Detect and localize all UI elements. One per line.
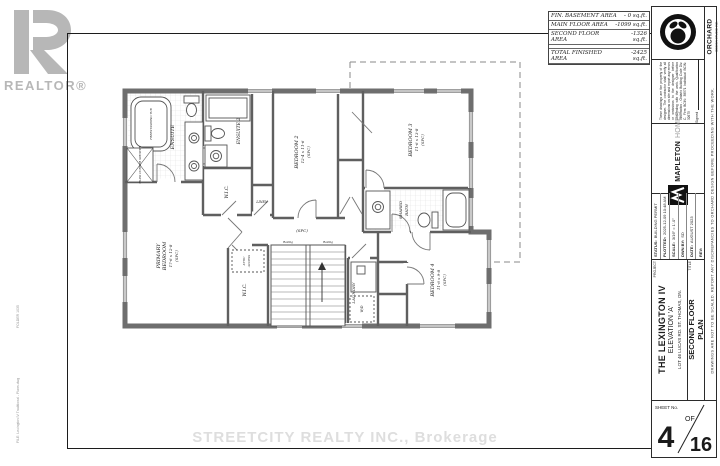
svg-text:(SPC): (SPC) — [306, 146, 311, 158]
railing-label: Railing — [282, 240, 293, 244]
tub-label: FREESTANDING TUB — [149, 108, 153, 140]
sheet-title-line1: SECOND FLOOR — [687, 299, 696, 359]
title-cell-label: TITLE — [688, 261, 692, 271]
table-row: MAIN FLOOR AREA -1099 sq.ft. — [549, 21, 649, 30]
laundry-label: LAUNDRY — [351, 282, 356, 305]
wd-label: W/D — [360, 305, 364, 312]
svg-text:17-6 x 12-8: 17-6 x 12-8 — [168, 244, 173, 267]
status-row: DATE:AUGUST 2023 — [687, 193, 696, 259]
svg-text:BATH: BATH — [404, 204, 409, 217]
svg-text:12-4 x 11-6: 12-4 x 11-6 — [300, 140, 305, 163]
status-row: STATUS:BUILDING PERMIT — [652, 193, 661, 259]
project-address: LOT 46 LUCAS RD. ST. THOMAS, ON. — [677, 290, 682, 369]
svg-text:(SPC): (SPC) — [174, 250, 179, 262]
wic-label: W.I.C. — [224, 185, 230, 199]
table-row-total: TOTAL FINISHED AREA -2425 sq.ft. — [549, 48, 649, 64]
status-table: STATUS:BUILDING PERMIT PLOTTED:2025-12-0… — [652, 193, 704, 259]
stairs — [271, 245, 345, 326]
orchard-brand: ORCHARD DESIGN STUDIO INC. — [705, 13, 718, 59]
sheet-number-cell: SHEET No. 4 OF 16 — [652, 401, 716, 457]
sheet-total: 16 — [690, 434, 712, 456]
brokerage-watermark: STREETCITY REALTY INC., Brokerage — [175, 429, 515, 446]
primary-wic-label: W.I.C. — [242, 283, 248, 297]
signature-line — [695, 59, 699, 110]
title-block: ORCHARD DESIGN STUDIO INC. These drawing… — [651, 6, 717, 458]
area-summary-table: FIN. BASEMENT AREA - 0 sq.ft. MAIN FLOOR… — [548, 11, 650, 65]
project-cell-label: PROJECT — [653, 261, 657, 277]
ensuite2-label: ENSUITE 2 — [236, 118, 242, 146]
svg-text:ACCESS: ACCESS — [247, 255, 251, 268]
table-row: FIN. BASEMENT AREA - 0 sq.ft. — [549, 12, 649, 21]
toilet-icon — [205, 126, 211, 141]
project-cell: PROJECT THE LEXINGTON IV ELEVATION 'A' L… — [652, 259, 687, 400]
builder-brand: MAPLETONHOMES — [652, 123, 704, 193]
linen-label: LINEN — [255, 200, 267, 204]
orchard-logo-icon — [652, 10, 704, 56]
project-elevation: ELEVATION 'A' — [668, 306, 675, 354]
toilet-icon — [432, 212, 438, 228]
floor-plan: ENSUITE ENSUITE 2 W.I.C. LINEN BEDROOM 2… — [0, 0, 720, 466]
sheet-title-cell: TITLE SECOND FLOOR PLAN — [687, 259, 704, 400]
sheet-number: 4 — [658, 421, 675, 454]
sheet-no-label: SHEET No. — [655, 405, 678, 410]
edge-note-right: DRAWINGS ARE NOT TO BE SCALED. REPORT AN… — [706, 61, 719, 401]
signed-label: Signed — [695, 112, 699, 123]
hall-spc-label: (SPC) — [296, 228, 308, 233]
svg-text:11-6 x 9-8: 11-6 x 9-8 — [436, 269, 441, 290]
status-row: REV: — [696, 193, 704, 259]
project-name: THE LEXINGTON IV — [657, 285, 667, 374]
svg-text:(SPC): (SPC) — [420, 134, 425, 146]
status-row: PLOTTED:2025-12-09 10:48 AM — [661, 193, 670, 259]
shower-label: TILED CORNER SHOWER — [138, 146, 142, 184]
shared-bath-label: SHARED — [398, 200, 403, 219]
table-row: SECOND FLOOR AREA -1326 sq.ft. — [549, 30, 649, 45]
railing-label: Railing — [322, 240, 333, 244]
sheet-title-line2: PLAN — [696, 319, 705, 339]
toilet-icon — [184, 96, 199, 103]
svg-text:11-6 x 13-8: 11-6 x 13-8 — [414, 128, 419, 151]
ensuite-label: ENSUITE — [170, 124, 176, 150]
svg-text:(SPC): (SPC) — [442, 274, 447, 286]
drawing-sheet: REALTOR® FOLDER 1035 FILE: Lexington IV … — [0, 0, 720, 466]
sheet-of: OF — [685, 416, 695, 423]
status-row: DWN BY:SD — [679, 193, 688, 259]
attic-label: ATTIC — [242, 256, 246, 267]
status-row: SCALE:3/16" = 1'-0" — [670, 193, 679, 259]
